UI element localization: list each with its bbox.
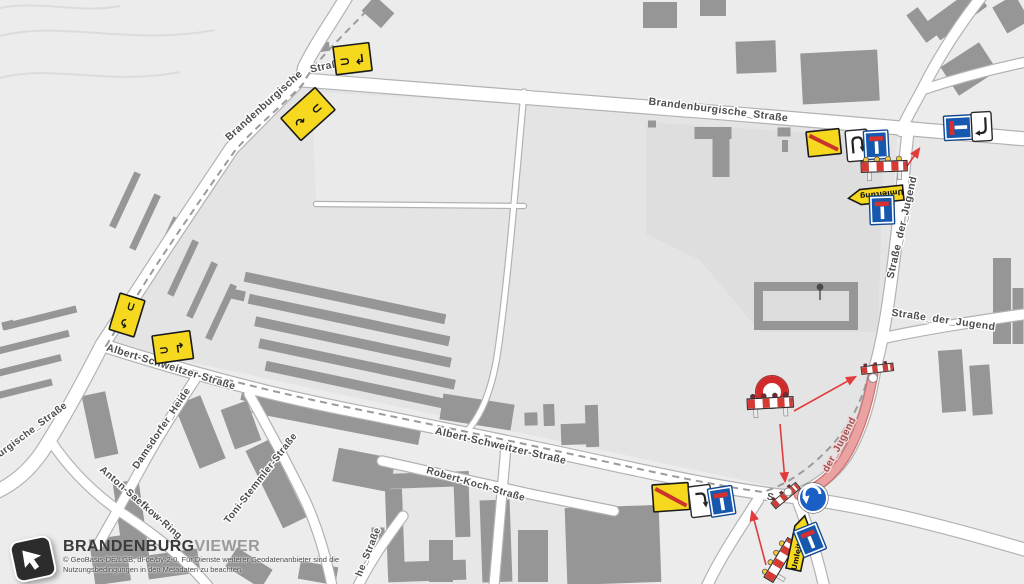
building	[993, 258, 1011, 344]
brand-title: BRANDENBURGVIEWER	[63, 538, 339, 555]
building	[695, 127, 732, 139]
building	[0, 379, 53, 402]
detour-arrow-icon: ↱	[174, 341, 187, 357]
brand-text: BRANDENBURGVIEWER © GeoBasis-DE/LGB, dl-…	[63, 538, 339, 574]
building	[129, 193, 161, 250]
dead-end-sign-south-1[interactable]	[707, 485, 736, 518]
building	[565, 505, 662, 584]
terrain-contour	[0, 5, 120, 8]
building	[585, 405, 599, 447]
building	[0, 330, 70, 354]
terrain-contour	[0, 30, 215, 36]
copyright-line-2: Nutzungsbedingungen in den Metadaten zu …	[63, 565, 339, 575]
viewer-cursor-icon	[8, 534, 58, 584]
road	[316, 204, 524, 206]
dead-end-sign-north-2[interactable]	[869, 195, 895, 225]
dead-end-sign-rotated	[943, 114, 973, 140]
building	[82, 391, 119, 459]
building	[543, 404, 555, 426]
terrain-shade	[312, 92, 524, 206]
building	[735, 40, 776, 73]
detour-route-sign-west-2[interactable]: ⊃ ↱	[152, 331, 194, 364]
building	[778, 128, 791, 137]
dead-end-turn-combo-sign-northeast[interactable]	[943, 111, 992, 142]
building	[0, 354, 62, 378]
building	[109, 171, 141, 228]
building	[1, 320, 15, 331]
building	[362, 0, 395, 28]
building	[713, 139, 730, 177]
building	[454, 481, 471, 537]
building	[800, 50, 880, 105]
building	[700, 0, 726, 16]
detour-route-sign-north-1[interactable]: ⊃ ↲	[333, 43, 372, 75]
building	[782, 140, 788, 152]
building	[992, 0, 1024, 33]
connector-arrow-south	[752, 512, 766, 565]
building	[938, 349, 966, 413]
terrain-contour	[0, 72, 180, 78]
mandatory-turn-sign[interactable]	[798, 483, 828, 513]
barrier-light-dot	[869, 374, 878, 383]
detour-loop-icon: ⊃	[339, 54, 352, 70]
barrier-light-dot	[784, 488, 792, 496]
building	[969, 364, 992, 415]
dead-end-sign-north-1[interactable]	[863, 130, 889, 160]
building	[524, 412, 537, 425]
detour-arrow-icon: ↲	[353, 52, 367, 69]
building	[648, 121, 656, 128]
detour-end-sign-south[interactable]	[652, 482, 690, 511]
map-canvas[interactable]: Umleitung Brandenburgische Straße Brande…	[0, 0, 1024, 584]
map-viewer: Umleitung Brandenburgische Straße Brande…	[0, 0, 1024, 584]
building	[643, 2, 677, 28]
brand-name-light: VIEWER	[195, 538, 261, 555]
building	[388, 560, 467, 583]
detour-loop-icon: ⊃	[158, 342, 170, 357]
detour-end-sign-north[interactable]	[806, 129, 841, 157]
copyright-line-1: © GeoBasis-DE/LGB, dl-de/by-2-0. Für Die…	[63, 555, 339, 565]
building	[763, 291, 849, 321]
brand-name-bold: BRANDENBURG	[63, 538, 195, 555]
brandenburg-viewer-logo[interactable]: BRANDENBURGVIEWER © GeoBasis-DE/LGB, dl-…	[12, 538, 339, 580]
building	[518, 530, 548, 582]
contour-layer	[0, 5, 215, 78]
